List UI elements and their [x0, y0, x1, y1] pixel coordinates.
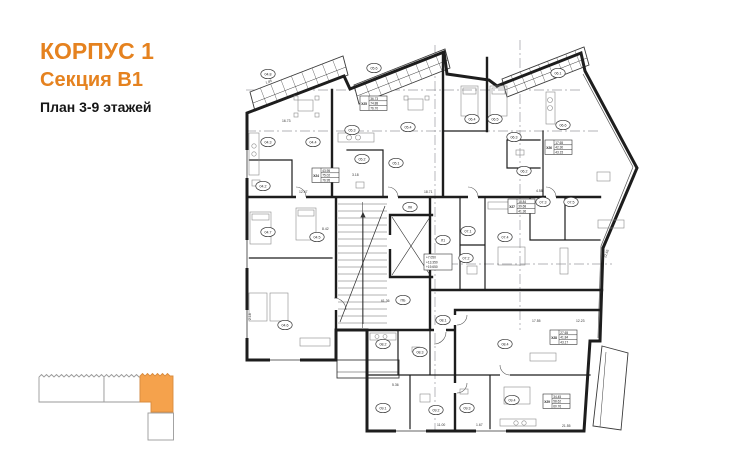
svg-text:76.95: 76.95 [322, 179, 330, 183]
svg-text:08.2: 08.2 [380, 342, 387, 346]
room-tag: Л1 [436, 235, 450, 244]
svg-text:43.95: 43.95 [322, 169, 330, 173]
room-tag: 05.3 [345, 125, 359, 134]
room-tag: 09.3 [460, 403, 474, 412]
room-tag: 04.4 [306, 137, 320, 146]
room-tag: 04.6 [278, 320, 292, 329]
floor-plan-page: КОРПУС 1 Секция В1 План 3-9 этажей [0, 0, 740, 472]
room-tag: 05.2 [355, 154, 369, 163]
room-tag: 04.5 [310, 232, 324, 241]
svg-text:27.65: 27.65 [560, 331, 568, 335]
svg-text:04.3: 04.3 [265, 140, 272, 144]
svg-text:17.65: 17.65 [555, 141, 563, 145]
dim-label: 61.36 [381, 299, 390, 303]
dim-label: 2.18 [248, 313, 252, 320]
svg-text:04.6: 04.6 [282, 323, 289, 327]
room-tag: 08.3 [413, 347, 427, 356]
room-tag: 06.4 [465, 114, 479, 123]
svg-text:05.6: 05.6 [371, 66, 378, 70]
svg-text:04.4: 04.4 [310, 140, 317, 144]
apartment-table: X2934.4558.6260.76 [543, 394, 570, 409]
svg-text:X28: X28 [551, 336, 557, 340]
svg-text:X26: X26 [546, 146, 552, 150]
windows [245, 150, 506, 433]
svg-text:07.1: 07.1 [465, 229, 472, 233]
room-tag: 04.8 [261, 69, 275, 78]
svg-text:75.02: 75.02 [322, 174, 330, 178]
svg-text:41.36: 41.36 [518, 210, 526, 214]
svg-text:06.6: 06.6 [560, 123, 567, 127]
room-tag: 09.1 [376, 403, 390, 412]
room-tag: 06.6 [556, 120, 570, 129]
dim-label: 4.58 [536, 189, 543, 193]
svg-text:41.84: 41.84 [560, 336, 568, 340]
room-tag: 07.4 [498, 232, 512, 241]
svg-text:09.2: 09.2 [433, 408, 440, 412]
partition-walls [247, 131, 600, 430]
room-tag: 08.1 [436, 315, 450, 324]
room-tag: 04.3 [261, 137, 275, 146]
svg-text:04.5: 04.5 [314, 235, 321, 239]
svg-text:+13.350: +13.350 [426, 260, 438, 264]
svg-text:05.3: 05.3 [349, 128, 356, 132]
svg-text:34.45: 34.45 [553, 395, 561, 399]
svg-text:76.70: 76.70 [370, 107, 378, 111]
apartment-table: X2827.6541.8443.17 [550, 330, 577, 345]
svg-text:58.62: 58.62 [553, 400, 561, 404]
room-tag: 07.1 [461, 226, 475, 235]
apartment-table: X2718.8439.6841.36 [508, 199, 535, 214]
svg-text:X29: X29 [544, 400, 550, 404]
dim-label: 3.18 [352, 173, 359, 177]
svg-text:60.76: 60.76 [553, 405, 561, 409]
balcony-strip [250, 56, 348, 111]
svg-text:04.2: 04.2 [260, 184, 267, 188]
svg-text:08.4: 08.4 [502, 342, 509, 346]
svg-text:36.73: 36.73 [370, 97, 378, 101]
apartment-table: X2536.7374.8876.70 [360, 96, 387, 111]
svg-text:+19.650: +19.650 [426, 265, 438, 269]
svg-text:04.7: 04.7 [265, 230, 272, 234]
dim-label: 16.73 [282, 119, 291, 123]
room-tag: 06.5 [488, 114, 502, 123]
svg-text:X25: X25 [361, 102, 367, 106]
svg-text:39.68: 39.68 [518, 205, 526, 209]
room-tag: ПБ [396, 295, 410, 304]
svg-text:X27: X27 [509, 205, 515, 209]
svg-text:06.3: 06.3 [511, 135, 518, 139]
dim-label: 11.00 [437, 423, 445, 427]
balcony-strip [593, 346, 628, 430]
room-tag: 09.4 [505, 395, 519, 404]
room-tag: 06.3 [507, 132, 521, 141]
svg-text:74.88: 74.88 [370, 102, 378, 106]
svg-text:05.2: 05.2 [359, 157, 366, 161]
dim-label: 1.67 [476, 423, 483, 427]
room-tag: 08.4 [498, 339, 512, 348]
svg-text:09.3: 09.3 [464, 406, 471, 410]
room-tag: 05.6 [367, 63, 381, 72]
svg-text:X24: X24 [313, 174, 319, 178]
svg-text:06.2: 06.2 [521, 169, 528, 173]
svg-text:07.3: 07.3 [540, 200, 547, 204]
floor-plan: 04.804.304.404.204.704.504.605.605.305.4… [0, 0, 740, 472]
levels-box: +7.050+13.350+19.650 [424, 254, 452, 270]
svg-text:+7.050: +7.050 [426, 255, 436, 259]
room-tag: 04.2 [256, 181, 270, 190]
dim-label: 5.36 [392, 383, 399, 387]
room-tag: 04.7 [261, 227, 275, 236]
dim-label: 8.42 [322, 227, 329, 231]
svg-text:08.3: 08.3 [417, 350, 424, 354]
room-tag: 09.2 [429, 405, 443, 414]
svg-text:18.84: 18.84 [518, 200, 526, 204]
apartment-table: X2443.9575.0276.95 [312, 168, 339, 183]
svg-text:04.8: 04.8 [265, 72, 272, 76]
apartment-table: X2617.6542.3043.15 [545, 140, 572, 155]
svg-text:09.4: 09.4 [509, 398, 516, 402]
dim-label: 18.71 [424, 190, 433, 194]
svg-text:09.1: 09.1 [380, 406, 387, 410]
room-tag: 07.2 [459, 253, 473, 262]
svg-text:42.30: 42.30 [555, 146, 563, 150]
room-tag: 06.1 [551, 68, 565, 77]
svg-text:ПБ: ПБ [401, 298, 407, 302]
svg-text:05.1: 05.1 [393, 161, 400, 165]
dim-label: 21.55 [562, 424, 571, 428]
svg-text:07.5: 07.5 [568, 200, 575, 204]
svg-text:43.15: 43.15 [555, 151, 563, 155]
room-tag: 07.5 [564, 197, 578, 206]
room-tag: 05.4 [401, 122, 415, 131]
svg-text:07.2: 07.2 [463, 256, 470, 260]
svg-text:08.1: 08.1 [440, 318, 447, 322]
stair-core [338, 202, 430, 328]
dim-label: 17.55 [532, 319, 541, 323]
dim-label: 12.23 [576, 319, 585, 323]
dim-label: 12.47 [299, 190, 308, 194]
room-tag: 07.3 [536, 197, 550, 206]
svg-text:43.17: 43.17 [560, 341, 568, 345]
svg-text:07.4: 07.4 [502, 235, 509, 239]
room-tag: 08.2 [376, 339, 390, 348]
room-tag: ЛК [403, 202, 417, 211]
svg-text:06.1: 06.1 [555, 71, 562, 75]
svg-text:06.5: 06.5 [492, 117, 499, 121]
room-tag: 06.2 [517, 166, 531, 175]
svg-text:06.4: 06.4 [469, 117, 476, 121]
svg-text:Л1: Л1 [441, 238, 445, 242]
room-tag: 05.1 [389, 158, 403, 167]
svg-text:05.4: 05.4 [405, 125, 412, 129]
